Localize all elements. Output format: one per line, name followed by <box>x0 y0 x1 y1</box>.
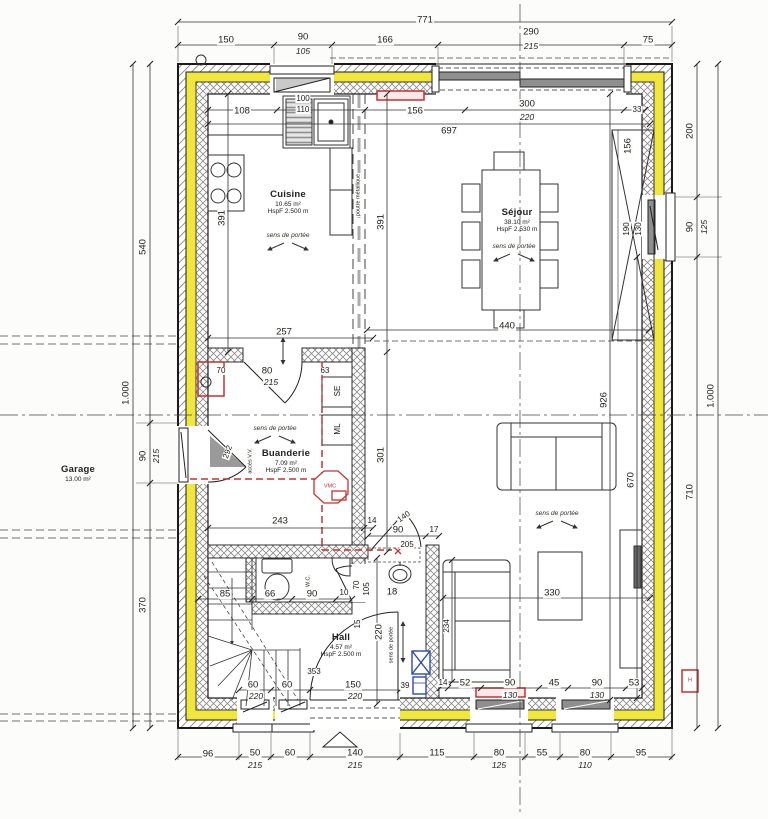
room-height: HspF 2.530 m <box>497 226 538 233</box>
dim-label: 156 <box>623 137 633 155</box>
room-name: Garage <box>61 465 95 476</box>
dim-label: 105 <box>363 581 371 596</box>
dim-label: 55 <box>536 748 549 758</box>
dim-label: 391 <box>376 213 386 231</box>
dim-label: 391 <box>217 209 227 227</box>
floor-plan: 7711509010516629021575108100110156300220… <box>0 0 768 819</box>
dim-label: 60 <box>284 748 297 758</box>
dim-label: 10 <box>339 589 350 597</box>
room-height: HspF 2.500 m <box>321 651 362 658</box>
room-label-garage: Garage13.00 m² <box>61 465 95 483</box>
dim-label: 100 <box>295 95 310 103</box>
dim-label: 926 <box>599 391 609 409</box>
dim-label: 110 <box>577 761 593 770</box>
dim-label: 130 <box>589 691 605 700</box>
dim-label: 60 <box>247 680 260 690</box>
dim-label: 130 <box>502 691 518 700</box>
dim-label: 125 <box>491 761 507 770</box>
dim-label: 234 <box>443 618 451 633</box>
room-label-cuisine: Cuisine10.65 m²HspF 2.500 m <box>268 190 309 216</box>
dim-label: 140 <box>346 748 364 758</box>
dim-label: 90 <box>138 450 148 463</box>
bay-window <box>432 62 631 96</box>
dim-label: 301 <box>376 446 386 464</box>
dim-label: 220 <box>347 692 363 701</box>
dim-label: 220 <box>248 692 264 701</box>
dim-label: 370 <box>138 596 148 614</box>
dim-label: 17 <box>429 526 440 534</box>
dim-label: 95 <box>635 748 648 758</box>
dim-label: 353 <box>306 668 321 676</box>
dim-label: 670 <box>626 471 636 489</box>
dim-label: 130 <box>635 221 643 236</box>
dim-label: 90 <box>591 678 604 688</box>
dim-label: 96 <box>202 749 215 759</box>
room-height: HspF 2.500 m <box>262 467 310 474</box>
dim-label: 90 <box>685 221 695 234</box>
dim-label: 70 <box>216 367 227 375</box>
annotation-label: sens de portée <box>491 244 536 251</box>
annotation-label: SE <box>334 385 342 398</box>
dim-label: 1.000 <box>706 383 716 409</box>
dim-label: 108 <box>233 106 251 116</box>
dim-label: 156 <box>406 106 424 116</box>
wall-wc-stair <box>246 558 256 602</box>
dim-label: 45 <box>548 678 561 688</box>
room-name: Séjour <box>497 208 538 219</box>
annotation-label: sens de portée <box>534 511 579 518</box>
dim-label: 215 <box>347 761 363 770</box>
dim-label: 150 <box>344 680 362 690</box>
dim-label: 215 <box>247 761 263 770</box>
dim-label: 200 <box>685 122 695 140</box>
annotation-label: ML <box>334 422 342 435</box>
dim-label: 85 <box>219 589 232 599</box>
faucet <box>329 120 333 124</box>
annotation-label: accès V.V. <box>248 447 254 474</box>
dim-label: 697 <box>440 126 458 136</box>
dim-label: 105 <box>295 47 311 56</box>
room-label-sejour: Séjour38.10 m²HspF 2.530 m <box>497 208 538 234</box>
room-name: Hall <box>321 633 362 644</box>
garage-outline-dashed <box>0 336 178 721</box>
room-area: 13.00 m² <box>61 476 95 483</box>
annotation-label: poutre métallique <box>356 173 362 217</box>
wall-buanderie-hall <box>208 545 368 558</box>
annotation-label: W.C. <box>306 574 312 588</box>
annotation-label: sens de portée <box>389 626 395 664</box>
room-label-buanderie: Buanderie7.09 m²HspF 2.500 m <box>262 449 310 475</box>
entrance-marker-triangle <box>323 732 357 747</box>
dim-label: 63 <box>320 367 331 375</box>
wall-hall-sejour <box>426 545 439 698</box>
dim-label: 215 <box>523 42 539 51</box>
dim-label: 125 <box>700 219 709 235</box>
garage-door-opening <box>176 426 210 484</box>
dim-label: 771 <box>416 15 434 25</box>
radiator-top <box>377 91 424 100</box>
dim-label: 110 <box>296 106 311 114</box>
dim-label: 1.000 <box>121 380 131 406</box>
dim-label: 440 <box>498 321 516 331</box>
dim-label: 710 <box>685 483 695 501</box>
annotation-label: sens de portée <box>265 233 310 240</box>
dim-label: 90 <box>297 32 310 42</box>
dim-label: 80 <box>493 748 506 758</box>
dim-label: 52 <box>459 678 472 688</box>
wall-buanderie-sejour <box>352 348 365 602</box>
room-area: 4.57 m² <box>321 644 362 651</box>
dim-label: 220 <box>374 623 384 641</box>
dim-label: 14 <box>367 517 378 525</box>
dim-label: 330 <box>543 588 561 598</box>
dim-label: 90 <box>306 589 319 599</box>
dim-label: 257 <box>275 327 293 337</box>
room-name: Buanderie <box>262 449 310 460</box>
kitchen-window <box>270 62 334 96</box>
dim-label: 166 <box>376 35 394 45</box>
dim-label: 70 <box>353 580 361 591</box>
dim-label: 205 <box>399 541 414 549</box>
room-name: Cuisine <box>268 190 309 201</box>
dim-label: 115 <box>428 748 445 758</box>
dim-label: 75 <box>642 35 655 45</box>
dim-label: 53 <box>628 678 641 688</box>
dim-label: 33 <box>632 106 643 114</box>
dim-label: 215 <box>263 378 279 387</box>
dim-label: 290 <box>522 27 540 37</box>
dim-label: 50 <box>249 748 262 758</box>
annotation-label: H <box>687 678 693 684</box>
room-area: 38.10 m² <box>497 219 538 226</box>
plan-drawing <box>0 0 768 819</box>
annotation-label: VMC <box>323 484 337 490</box>
dim-label: 39 <box>400 682 411 690</box>
room-area: 7.09 m² <box>262 460 310 467</box>
room-label-hall: Hall4.57 m²HspF 2.500 m <box>321 633 362 659</box>
bottom-window-80a <box>466 696 532 732</box>
room-area: 10.65 m² <box>268 201 309 208</box>
dim-label: 80 <box>579 748 592 758</box>
dim-label: 14 <box>438 679 449 687</box>
dim-label: 90 <box>392 525 405 535</box>
dim-label: 540 <box>138 238 148 256</box>
wall-wc-hall <box>252 602 352 614</box>
dim-label: 300 <box>518 99 536 109</box>
dim-label: 215 <box>152 448 161 464</box>
dim-label: 190 <box>623 221 631 236</box>
dim-label: 80 <box>261 366 274 376</box>
bottom-window-60 <box>272 696 314 732</box>
dim-label: 15 <box>354 619 362 630</box>
room-height: HspF 2.500 m <box>268 208 309 215</box>
dim-label: 220 <box>519 113 535 122</box>
dim-label: 66 <box>264 589 277 599</box>
right-window <box>642 193 676 261</box>
dim-label: 18 <box>386 587 399 597</box>
entrance-door-opening <box>310 696 400 730</box>
dim-label: 60 <box>281 680 294 690</box>
dim-label: 150 <box>217 35 235 45</box>
dim-label: 90 <box>504 678 517 688</box>
bottom-door-small <box>233 696 277 732</box>
annotation-label: sens de portée <box>252 426 297 433</box>
dim-label: 243 <box>271 516 289 526</box>
